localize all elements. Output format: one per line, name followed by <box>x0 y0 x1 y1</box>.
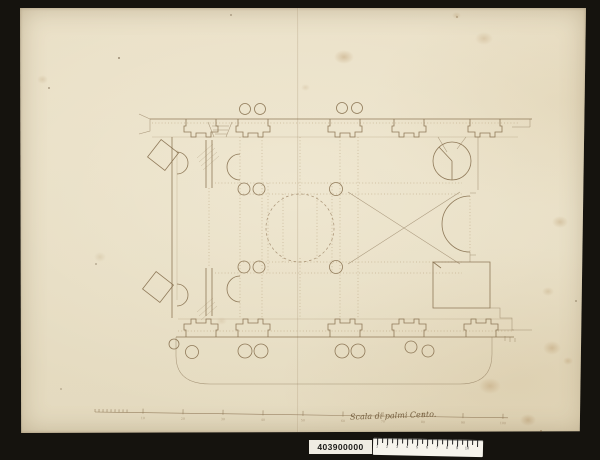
crossing-diagonals <box>348 192 460 264</box>
inventory-number-label: 403900000 <box>309 440 372 454</box>
scale-bar: 102030405060708090100 <box>95 408 508 425</box>
svg-text:60: 60 <box>341 419 345 423</box>
top-wall <box>139 114 532 137</box>
entrance-platform <box>176 337 492 384</box>
construction-grid <box>215 137 462 319</box>
right-wing <box>433 137 532 342</box>
svg-text:100: 100 <box>500 421 506 425</box>
svg-text:40: 40 <box>261 418 265 422</box>
svg-text:50: 50 <box>301 418 305 422</box>
apse-arc <box>442 196 470 252</box>
left-wing <box>143 137 240 320</box>
svg-text:80: 80 <box>421 420 425 424</box>
right-chamber <box>433 262 490 308</box>
svg-text:20: 20 <box>181 417 185 421</box>
photo-stage: 102030405060708090100 Scala di palmi Cen… <box>0 0 600 460</box>
bottom-wall <box>176 319 514 337</box>
svg-text:90: 90 <box>461 421 465 425</box>
bottom-columns <box>169 339 434 359</box>
crossing-columns <box>238 183 343 274</box>
svg-text:30: 30 <box>221 417 225 421</box>
svg-text:10: 10 <box>141 416 145 420</box>
reference-ruler: 12345678910 <box>373 438 483 457</box>
dome-circle <box>266 194 334 262</box>
top-column-pairs <box>240 103 363 115</box>
floor-plan-drawing: 102030405060708090100 <box>0 0 600 460</box>
